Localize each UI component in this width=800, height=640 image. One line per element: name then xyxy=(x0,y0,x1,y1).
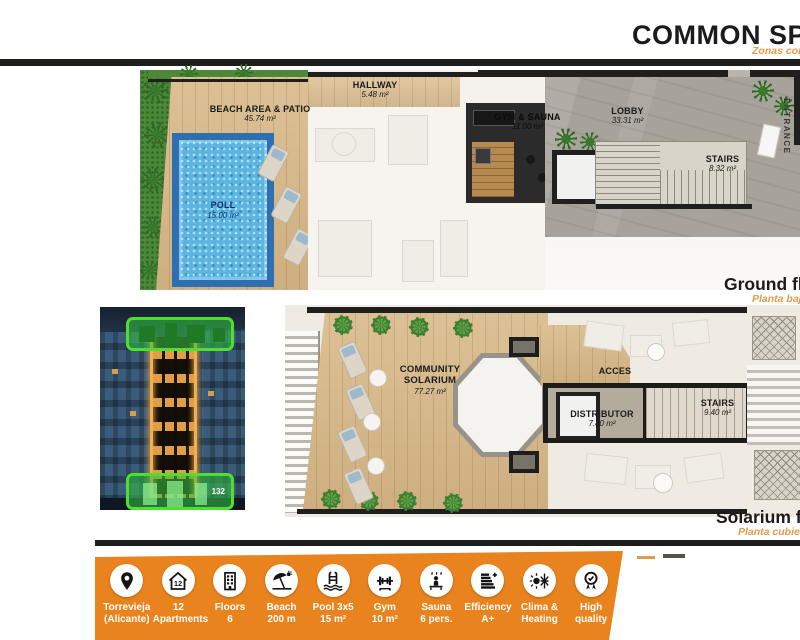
wall xyxy=(308,72,478,77)
room-area: 15.00 m² xyxy=(207,211,239,220)
page-subtitle: Zonas comunes xyxy=(752,45,800,57)
room-name: ACCES xyxy=(585,366,645,376)
room-area: 5.48 m² xyxy=(325,90,425,99)
wall xyxy=(307,307,747,313)
floors-icon xyxy=(213,564,246,597)
feature-line2: 6 pers. xyxy=(411,614,463,626)
feature-line1: Clima & xyxy=(514,602,566,614)
room-label-stairs: STAIRS 8.32 m² xyxy=(685,154,760,174)
room-label-lobby: LOBBY 33.31 m² xyxy=(585,106,670,126)
rooftop-unit xyxy=(509,337,539,357)
feature-location: Torrevieja (Alicante) xyxy=(101,564,153,640)
plant-icon xyxy=(453,318,473,338)
door-shape xyxy=(195,483,207,505)
feature-line1: Torrevieja xyxy=(101,602,153,614)
room-name: POLL xyxy=(207,200,239,210)
feature-line2: 6 xyxy=(204,614,256,626)
gym-icon xyxy=(368,564,401,597)
feature-line2: (Alicante) xyxy=(101,614,153,626)
room-area: 11.00 m² xyxy=(470,122,585,131)
plant-icon xyxy=(371,315,391,335)
furniture xyxy=(584,453,629,485)
building-photo: 132 xyxy=(100,307,245,510)
wall xyxy=(148,79,308,82)
room-area: 45.74 m² xyxy=(200,114,320,123)
wall xyxy=(596,204,752,209)
room-label-solarium: COMMUNITY SOLARIUM 77.27 m² xyxy=(375,365,485,396)
room-area: 7.80 m² xyxy=(557,419,647,428)
feature-line1: Gym xyxy=(359,602,411,614)
room-name: GYM & SAUNA xyxy=(470,112,585,122)
solarium-floor-plan: COMMUNITY SOLARIUM 77.27 m² ACCES DISTRI… xyxy=(285,305,800,517)
roof-hatch xyxy=(755,451,800,499)
feature-line2: 10 m² xyxy=(359,614,411,626)
silhouette xyxy=(187,325,205,343)
feature-beach: Beach 200 m xyxy=(256,564,308,640)
room-area: 9.40 m² xyxy=(680,408,755,417)
plant-icon xyxy=(333,315,353,335)
stair-flight xyxy=(596,142,660,206)
lit-window xyxy=(130,411,136,416)
plant-icon xyxy=(752,80,774,102)
plant-icon xyxy=(397,491,417,511)
feature-pool: Pool 3x5 15 m² xyxy=(307,564,359,640)
feature-line1: Pool 3x5 xyxy=(307,602,359,614)
pool-icon xyxy=(317,564,350,597)
room-name: BEACH AREA & PATIO xyxy=(200,104,320,114)
bottom-divider xyxy=(95,540,800,546)
logo-fragment xyxy=(637,556,655,559)
feature-line1: Floors xyxy=(204,602,256,614)
feature-line2: Heating xyxy=(514,614,566,626)
furniture xyxy=(402,240,434,282)
wall xyxy=(478,70,800,77)
ground-floor-highlight: 132 xyxy=(126,473,234,510)
lit-window xyxy=(112,369,118,374)
side-table xyxy=(367,457,385,475)
table xyxy=(653,473,673,493)
brochure-page: COMMON SPACES Zonas comunes BEACH AREA &… xyxy=(0,0,800,640)
silhouette xyxy=(139,326,155,342)
side-table xyxy=(363,413,381,431)
room-area: 33.31 m² xyxy=(585,116,670,125)
stairs-block xyxy=(596,142,746,206)
plant-icon xyxy=(409,317,429,337)
furniture xyxy=(440,220,468,277)
sauna-icon xyxy=(420,564,453,597)
room-name: LOBBY xyxy=(585,106,670,116)
features-bar: Torrevieja (Alicante) 12 12 Apartments xyxy=(95,551,623,640)
feature-clima: Clima & Heating xyxy=(514,564,566,640)
silhouette xyxy=(213,328,225,342)
ground-floor-plan: BEACH AREA & PATIO 45.74 m² POLL 15.00 m… xyxy=(140,70,800,290)
furniture xyxy=(672,319,710,347)
rooftop-unit-top xyxy=(513,455,535,469)
solarium-floor-caption: Solarium floor xyxy=(716,507,800,528)
plant-icon xyxy=(321,489,341,509)
lit-window xyxy=(208,391,214,396)
furniture xyxy=(388,115,428,165)
room-name: STAIRS xyxy=(685,154,760,164)
feature-floors: Floors 6 xyxy=(204,564,256,640)
room-label-distributor: DISTRIBUTOR 7.80 m² xyxy=(557,409,647,429)
room-name: STAIRS xyxy=(680,398,755,408)
furniture xyxy=(332,132,356,156)
feature-line1: High xyxy=(565,602,617,614)
room-label-beach-area: BEACH AREA & PATIO 45.74 m² xyxy=(200,104,320,124)
solarium-floor-caption-sub: Planta cubierta xyxy=(738,526,800,538)
wall xyxy=(794,77,800,145)
rooftop-unit xyxy=(509,451,539,473)
furniture xyxy=(318,220,372,277)
location-icon xyxy=(110,564,143,597)
door-shape xyxy=(167,481,183,507)
ground-floor-caption-sub: Planta baja xyxy=(752,293,800,305)
feature-line1: Beach xyxy=(256,602,308,614)
feature-line1: Sauna xyxy=(411,602,463,614)
feature-quality: High quality xyxy=(565,564,617,640)
elevator xyxy=(552,150,602,204)
roof-hatch xyxy=(753,317,795,359)
apartments-icon: 12 xyxy=(162,564,195,597)
palm-icon xyxy=(141,168,165,192)
palm-icon xyxy=(144,122,170,148)
stair-flight xyxy=(660,170,746,206)
room-name: DISTRIBUTOR xyxy=(557,409,647,419)
room-area: 8.32 m² xyxy=(685,164,760,173)
feature-line1: 12 xyxy=(153,602,205,614)
room-area: 77.27 m² xyxy=(375,387,485,396)
feature-line2: 200 m xyxy=(256,614,308,626)
feature-line2: Apartments xyxy=(153,614,205,626)
plant-icon xyxy=(443,493,463,513)
rooftop-unit-top xyxy=(513,341,535,353)
room-name: COMMUNITY SOLARIUM xyxy=(375,365,485,387)
furniture xyxy=(683,452,724,483)
room-label-hallway: HALLWAY 5.48 m² xyxy=(325,80,425,100)
efficiency-icon xyxy=(471,564,504,597)
feature-efficiency: Efficiency A+ xyxy=(462,564,514,640)
silhouette xyxy=(165,323,177,343)
clima-icon xyxy=(523,564,556,597)
furniture xyxy=(583,320,624,351)
feature-apartments: 12 12 Apartments xyxy=(153,564,205,640)
solarium-highlight xyxy=(126,317,234,351)
table xyxy=(647,343,665,361)
room-name: HALLWAY xyxy=(325,80,425,90)
pool: POLL 15.00 m² xyxy=(172,133,274,287)
sauna-stove xyxy=(476,149,490,163)
room-label-acces: ACCES xyxy=(585,366,645,376)
apartments-count: 12 xyxy=(174,578,182,587)
gym-equipment xyxy=(526,155,535,164)
beach-icon xyxy=(265,564,298,597)
feature-sauna: Sauna 6 pers. xyxy=(411,564,463,640)
room-label-stairs: STAIRS 9.40 m² xyxy=(680,398,755,418)
entrance-gap xyxy=(728,70,750,77)
room-label-gym: GYM & SAUNA 11.00 m² xyxy=(470,112,585,132)
quality-icon xyxy=(575,564,608,597)
feature-line2: quality xyxy=(565,614,617,626)
door-shape xyxy=(143,483,157,505)
feature-gym: Gym 10 m² xyxy=(359,564,411,640)
logo-fragment xyxy=(663,554,685,558)
feature-line2: A+ xyxy=(462,614,514,626)
feature-line1: Efficiency xyxy=(462,602,514,614)
entrance-label: ENTRANCE xyxy=(782,98,791,198)
feature-line2: 15 m² xyxy=(307,614,359,626)
ground-floor-caption: Ground floor xyxy=(724,274,800,295)
street-number: 132 xyxy=(212,487,225,496)
header-divider xyxy=(0,59,800,66)
room-label-pool: POLL 15.00 m² xyxy=(207,200,239,220)
